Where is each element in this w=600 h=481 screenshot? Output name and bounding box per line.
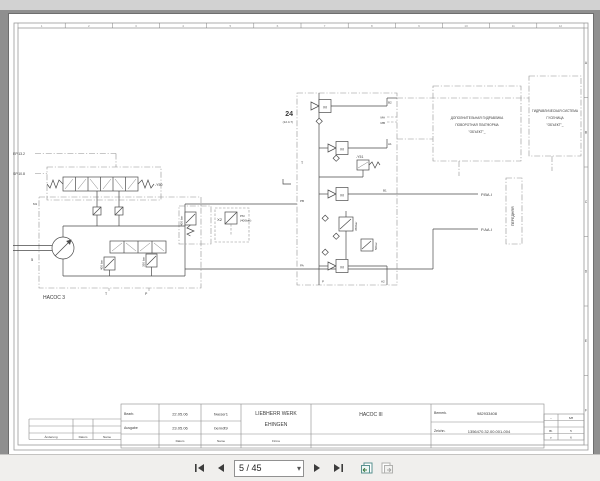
valve-bank [110,241,166,253]
grid-col: 4 [182,24,184,28]
grid-row: A [585,61,588,65]
pump-port-label: 5 [31,257,34,262]
pressure-label: 400 bar [100,260,104,270]
drawing-number: 1356470.32.00.001-004 [468,429,511,434]
pipe-reference-labels: EP.13.2 SP.10.8 [13,152,116,176]
grid-row: F [585,409,587,413]
port-label: A2 [381,280,385,284]
next-view-button[interactable] [379,460,395,476]
pressure-label: 350 bar [142,257,146,267]
schematic-page: 1 2 3 4 5 6 7 8 9 10 11 12 A B C D E F [8,13,594,456]
cartridge-valve: M [311,100,331,113]
titleblock-footer-label: Datum [176,439,185,443]
grid-row: E [585,339,587,343]
sheet-cell: v. [550,436,552,440]
block-reference: (12.4.7) [283,120,293,124]
previous-view-icon [360,462,374,474]
valve-symbol-letter: M [323,105,326,110]
check-valve [93,207,101,215]
grid-col: 3 [135,24,137,28]
titleblock-date: 22.05.06 [172,412,188,417]
pump-circuit-left: -Y50 5 [13,167,433,301]
port-label: T [301,161,304,165]
sheet-cell: Bl. [549,429,553,433]
titleblock-row-label: Ausgabe [124,426,138,430]
page-number-input[interactable] [235,463,297,473]
system-box-text: "ОБЪЕКТ"_ [547,123,564,127]
port-label: A1 [388,142,392,146]
view-history-buttons [359,460,395,476]
valve-symbol-letter: M [340,265,343,270]
port-label: PA [300,264,304,268]
cartridge-valve: M [328,260,348,273]
system-box-text: ПОВОРОТНАЯ ПЛАТФОРМА [455,123,499,127]
system-box-text: ДОПОЛНИТЕЛЬНАЯ ГИДРАВЛИКА [451,116,504,120]
page-dropdown-caret-icon[interactable]: ▾ [297,464,303,473]
first-page-button[interactable] [192,460,208,476]
grid-column-numbers: 1 2 3 4 5 6 7 8 9 10 11 12 [41,24,563,28]
grid-col: 5 [229,24,231,28]
solenoid-valve-y51: -Y51 [319,155,380,177]
grid-col: 2 [88,24,90,28]
grid-row: C [585,200,588,204]
next-page-button[interactable] [309,460,325,476]
titleblock-name: berndt9 [214,426,228,431]
check-valve [115,207,123,215]
grid-row: B [585,131,587,135]
port-label: T [105,292,108,296]
test-point-note: (400bar) [240,219,251,223]
pdf-navigation-toolbar: ▾ [0,454,600,481]
pressure-label: 50bar [374,242,378,250]
relief-valve-350bar: 350bar [339,211,358,259]
port-line-label: P.BA.I [481,192,492,197]
ref-label-2: SP.10.8 [13,172,25,176]
grid-col: 7 [324,24,326,28]
pump-circuit-title: НАСОС 3 [43,295,65,301]
sheet-cell: – [550,416,552,420]
valve-symbol-letter: M [340,193,343,198]
ref-label-1: EP.13.2 [13,152,25,156]
test-point-x2: X2 PM (400bar) [217,212,251,236]
remote-system-boxes: ДОПОЛНИТЕЛЬНАЯ ГИДРАВЛИКА ПОВОРОТНАЯ ПЛА… [397,76,581,269]
hydraulic-pump: 5 [13,237,74,262]
relief-valve-400bar-2: 400 bar [180,212,197,236]
port-label: B1 [383,189,387,193]
sheet-cell: 6 [570,436,572,440]
last-page-button[interactable] [330,460,346,476]
system-box-text: "ОБЪЕКТ"_ [469,130,486,134]
next-view-icon [380,462,394,474]
grid-row: D [585,270,588,274]
company-city: EHINGEN [265,422,288,428]
previous-view-button[interactable] [359,460,375,476]
sheet-cell: 6/8 [569,416,574,420]
grid-col: 9 [418,24,420,28]
system-box-text: ГУСЕНИЦА [546,116,564,120]
relief-valve-400bar: 400 bar [100,257,116,276]
port-label: P [322,280,324,284]
titleblock-footer-label: Name [217,439,225,443]
port-label: B2 [388,101,392,105]
pressure-label: 350bar [354,222,358,231]
block-number: 24 [285,111,293,118]
check-diamonds [316,118,339,255]
port-label: M1 [33,202,37,206]
grid-col: 6 [277,24,279,28]
id-label: Bemerk. [434,411,447,415]
grid-col: 10 [464,24,468,28]
valve-id-label: -Y50 [155,183,162,187]
id-number: 982933408 [477,411,498,416]
port-label: MB [381,121,386,125]
titleblock-row-label: Bearb. [124,412,134,416]
port-label: PB [300,199,304,203]
drawing-number-label: Zeichn. [434,429,446,433]
port-label: MA [381,116,386,120]
grid-col: 8 [371,24,373,28]
front-box-label: ПЕРЕДНЯЯ [511,206,515,226]
port-label: P [145,292,148,296]
sheet-cell: 5 [570,429,572,433]
valve-symbol-letter: M [340,147,343,152]
document-title: НАСОС III [359,412,382,418]
previous-page-button[interactable] [213,460,229,476]
system-box-text: ГИДРАВЛИЧЕСКАЯ СИСТЕМА [532,109,579,113]
last-page-icon [332,463,344,473]
page-number-field: ▾ [234,460,304,477]
grid-col: 11 [512,24,515,28]
cartridge-valve: M [328,188,348,201]
previous-page-icon [216,463,226,473]
directional-valve: -Y50 [47,177,162,191]
drawing-frame: 1 2 3 4 5 6 7 8 9 10 11 12 A B C D E F [14,23,588,450]
page-navigation: ▾ [0,460,395,477]
valve-block-24: 24 (12.4.7) M B2 MA MB M [283,93,478,285]
company-name: LIEBHERR WERK [255,411,297,417]
cartridge-valve: M [328,142,348,155]
titleblock-name: fweser1 [214,412,229,417]
test-point-note: PM [240,214,245,218]
rev-col-header: Name [103,435,111,439]
title-block: Änderung Datum Name Bearb. 22.05.06 fwes… [29,404,584,448]
titleblock-footer-label: Firma [272,439,280,443]
first-page-icon [194,463,206,473]
pressure-label: 400 bar [180,216,184,226]
test-point-id: X2 [217,217,223,222]
port-line-label: P.AA.I [481,227,492,232]
pdf-viewer-window: 1 2 3 4 5 6 7 8 9 10 11 12 A B C D E F [0,0,600,480]
relief-valve-50bar: 50bar [361,239,378,251]
valve-id-label: -Y51 [356,155,363,159]
grid-col: 12 [559,24,563,28]
rev-col-header: Änderung [44,435,57,439]
hydraulic-schematic: 1 2 3 4 5 6 7 8 9 10 11 12 A B C D E F [9,14,593,455]
rev-col-header: Datum [79,435,88,439]
relief-valve-350bar: 350 bar [142,254,158,276]
grid-col: 1 [41,24,43,28]
next-page-icon [312,463,322,473]
titleblock-date: 23.05.06 [172,426,188,431]
